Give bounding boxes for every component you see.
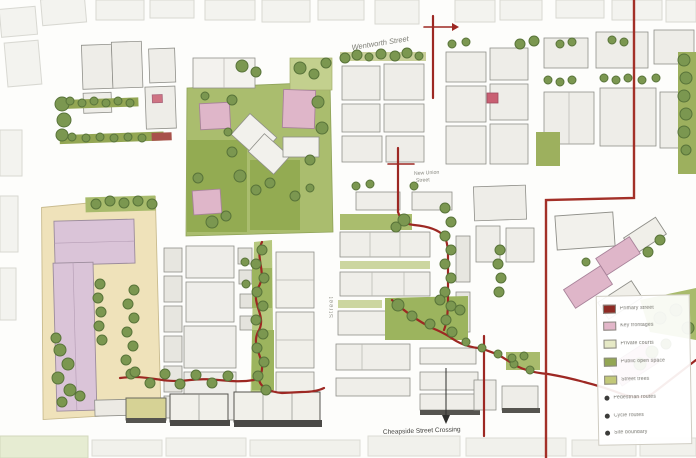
legend-swatch-pedestrian-routes <box>604 395 609 400</box>
block-center-right <box>336 192 480 415</box>
street-label-mid-1: New Union <box>414 170 440 177</box>
street-label-bottom: Cheapside Street Crossing <box>383 426 461 436</box>
legend-label: Public open space <box>621 359 665 365</box>
legend-swatch-cycle-routes <box>605 413 610 418</box>
legend-label: Site boundary <box>614 430 648 436</box>
legend-swatch-primary-street <box>603 304 616 313</box>
legend-label: Primary street <box>620 305 654 311</box>
legend-item: Site boundary <box>605 425 687 440</box>
map-legend: Primary street Key frontages Private cou… <box>596 294 693 446</box>
legend-swatch-street-trees <box>604 375 617 384</box>
legend-label: Key frontages <box>620 323 654 329</box>
street-label-vertical: Street <box>329 296 335 318</box>
legend-swatch-site-boundary <box>605 431 610 436</box>
legend-item: Public open space <box>604 354 686 369</box>
block-top-right-inner <box>446 48 528 164</box>
legend-swatch-private-courts <box>603 340 616 349</box>
leader-arrow-icon <box>442 415 450 424</box>
legend-item: Cycle routes <box>605 407 687 422</box>
route-arrow-icon <box>452 23 459 31</box>
legend-label: Pedestrian routes <box>613 395 656 401</box>
legend-item: Street trees <box>604 372 686 387</box>
legend-item: Primary street <box>603 300 685 315</box>
legend-swatch-key-frontages <box>603 322 616 331</box>
block-central-park <box>186 58 333 236</box>
legend-label: Cycle routes <box>614 413 644 419</box>
legend-item: Private courts <box>603 336 685 351</box>
block-top-right <box>536 30 696 174</box>
street-label-mid-2: Street <box>416 177 431 184</box>
legend-label: Private courts <box>621 341 654 347</box>
masterplan-drawing: Wentworth Street New Union Street Street… <box>0 0 696 458</box>
block-top-center <box>340 52 426 162</box>
masterplan-map: Wentworth Street New Union Street Street… <box>0 0 696 458</box>
context-buildings-bottom <box>0 436 696 458</box>
block-top-left <box>56 40 177 144</box>
legend-item: Pedestrian routes <box>604 389 686 404</box>
legend-swatch-open-space <box>604 358 617 367</box>
legend-label: Street trees <box>621 377 649 382</box>
legend-item: Key frontages <box>603 318 685 333</box>
